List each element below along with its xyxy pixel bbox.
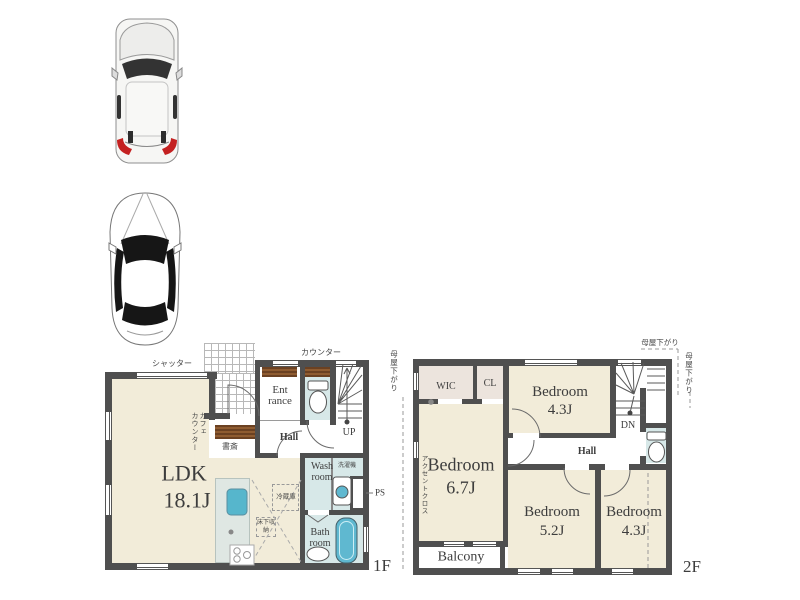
label-cl: CL (484, 379, 497, 390)
label-dn: DN (621, 421, 635, 432)
label-floor1: 1F (373, 557, 391, 575)
label-floor2: 2F (683, 558, 701, 576)
plan-linework (0, 0, 800, 600)
label-bedroom-a: Bedroom (532, 385, 588, 401)
label-hall-2f: Hall (578, 447, 596, 458)
label-bath-1: Bath (311, 528, 330, 539)
label-bedroom-b: Bedroom (428, 456, 495, 475)
car-suv-icon (112, 19, 182, 163)
label-bedroom-a-size: 4.3J (548, 403, 573, 419)
car-sedan-icon (109, 193, 181, 345)
wic-door-dot (428, 399, 434, 405)
floor-plan-page: シャッター カウンター Ent rance Hall UP カフェ カウンター … (0, 0, 800, 600)
label-fridge: 冷蔵庫 (276, 494, 296, 501)
label-bedroom-c-size: 5.2J (540, 524, 565, 540)
toilet-1f-icon (308, 381, 328, 413)
label-wic: WIC (436, 382, 455, 393)
label-up: UP (343, 428, 356, 439)
label-bedroom-d-size: 4.3J (622, 524, 647, 540)
label-bedroom-d: Bedroom (606, 505, 662, 521)
label-wash-1: Wash (311, 462, 333, 473)
doors-2f (508, 409, 630, 496)
label-study: 書斎 (222, 443, 238, 451)
label-ps: PS (375, 488, 385, 497)
label-bedroom-c: Bedroom (524, 505, 580, 521)
label-accent-cloth: アクセントクロス (419, 455, 429, 515)
label-washer: 洗濯機 (338, 463, 356, 469)
stove-icon (230, 545, 254, 565)
label-counter-1f: カウンター (301, 349, 341, 357)
label-ldk: LDK (161, 461, 206, 484)
kitchen-sink-icon (227, 489, 247, 535)
label-cafe-counter-2: カウンター (190, 412, 200, 452)
label-bath-2: room (309, 539, 330, 550)
bathtub-icon (336, 518, 357, 563)
stairs-1f (338, 364, 362, 425)
label-ldk-size: 18.1J (163, 488, 210, 511)
label-moya-right: 母屋下がり (684, 352, 695, 395)
label-moya-left: 母屋下がり (389, 350, 400, 393)
stairs-2f (616, 362, 665, 416)
label-hall-1f: Hall (280, 433, 298, 444)
label-floor-storage: 床下収納 (257, 518, 275, 536)
washing-machine-icon (333, 477, 351, 505)
label-moya-top: 母屋下がり (641, 339, 679, 347)
label-shutter: シャッター (152, 360, 192, 368)
label-bedroom-b-size: 6.7J (446, 479, 476, 498)
toilet-2f-icon (647, 432, 666, 462)
label-entrance-2: rance (268, 396, 292, 408)
label-balcony: Balcony (438, 551, 485, 566)
label-wash-2: room (311, 473, 332, 484)
